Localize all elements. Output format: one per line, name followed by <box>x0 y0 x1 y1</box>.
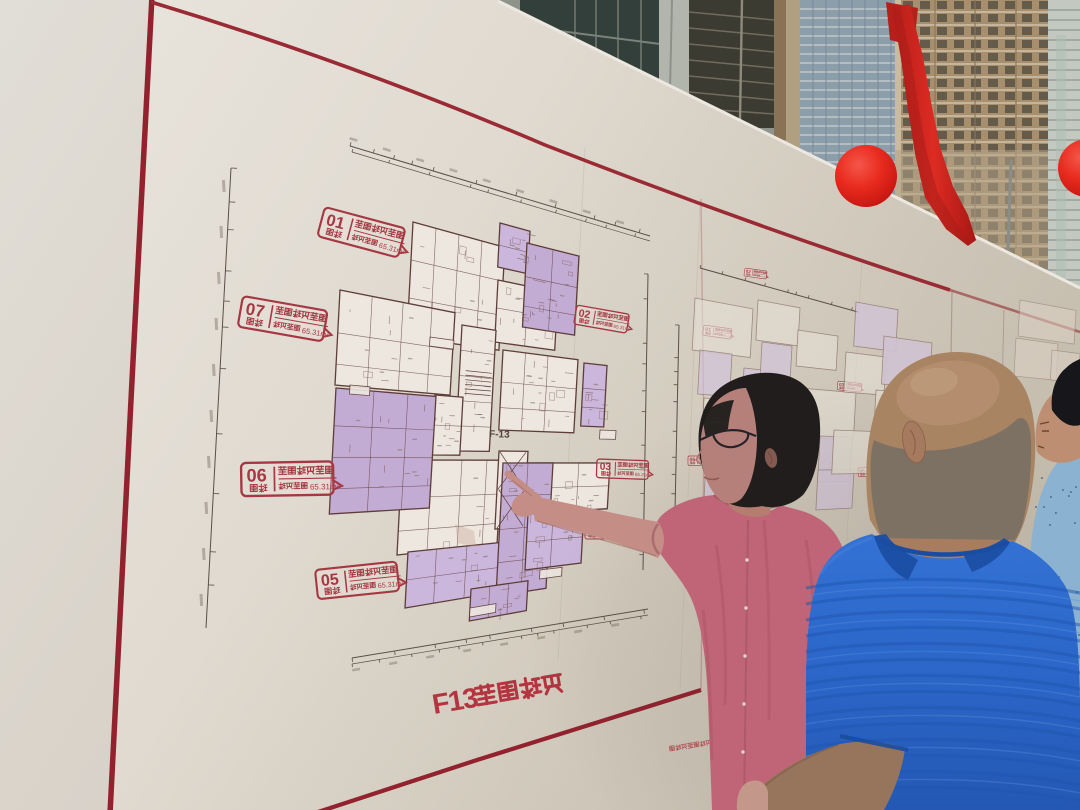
svg-text:05: 05 <box>320 570 340 590</box>
svg-text:06: 06 <box>246 465 267 485</box>
svg-text:65.31m²: 65.31m² <box>310 482 340 492</box>
svg-text:F-13: F-13 <box>489 429 510 441</box>
